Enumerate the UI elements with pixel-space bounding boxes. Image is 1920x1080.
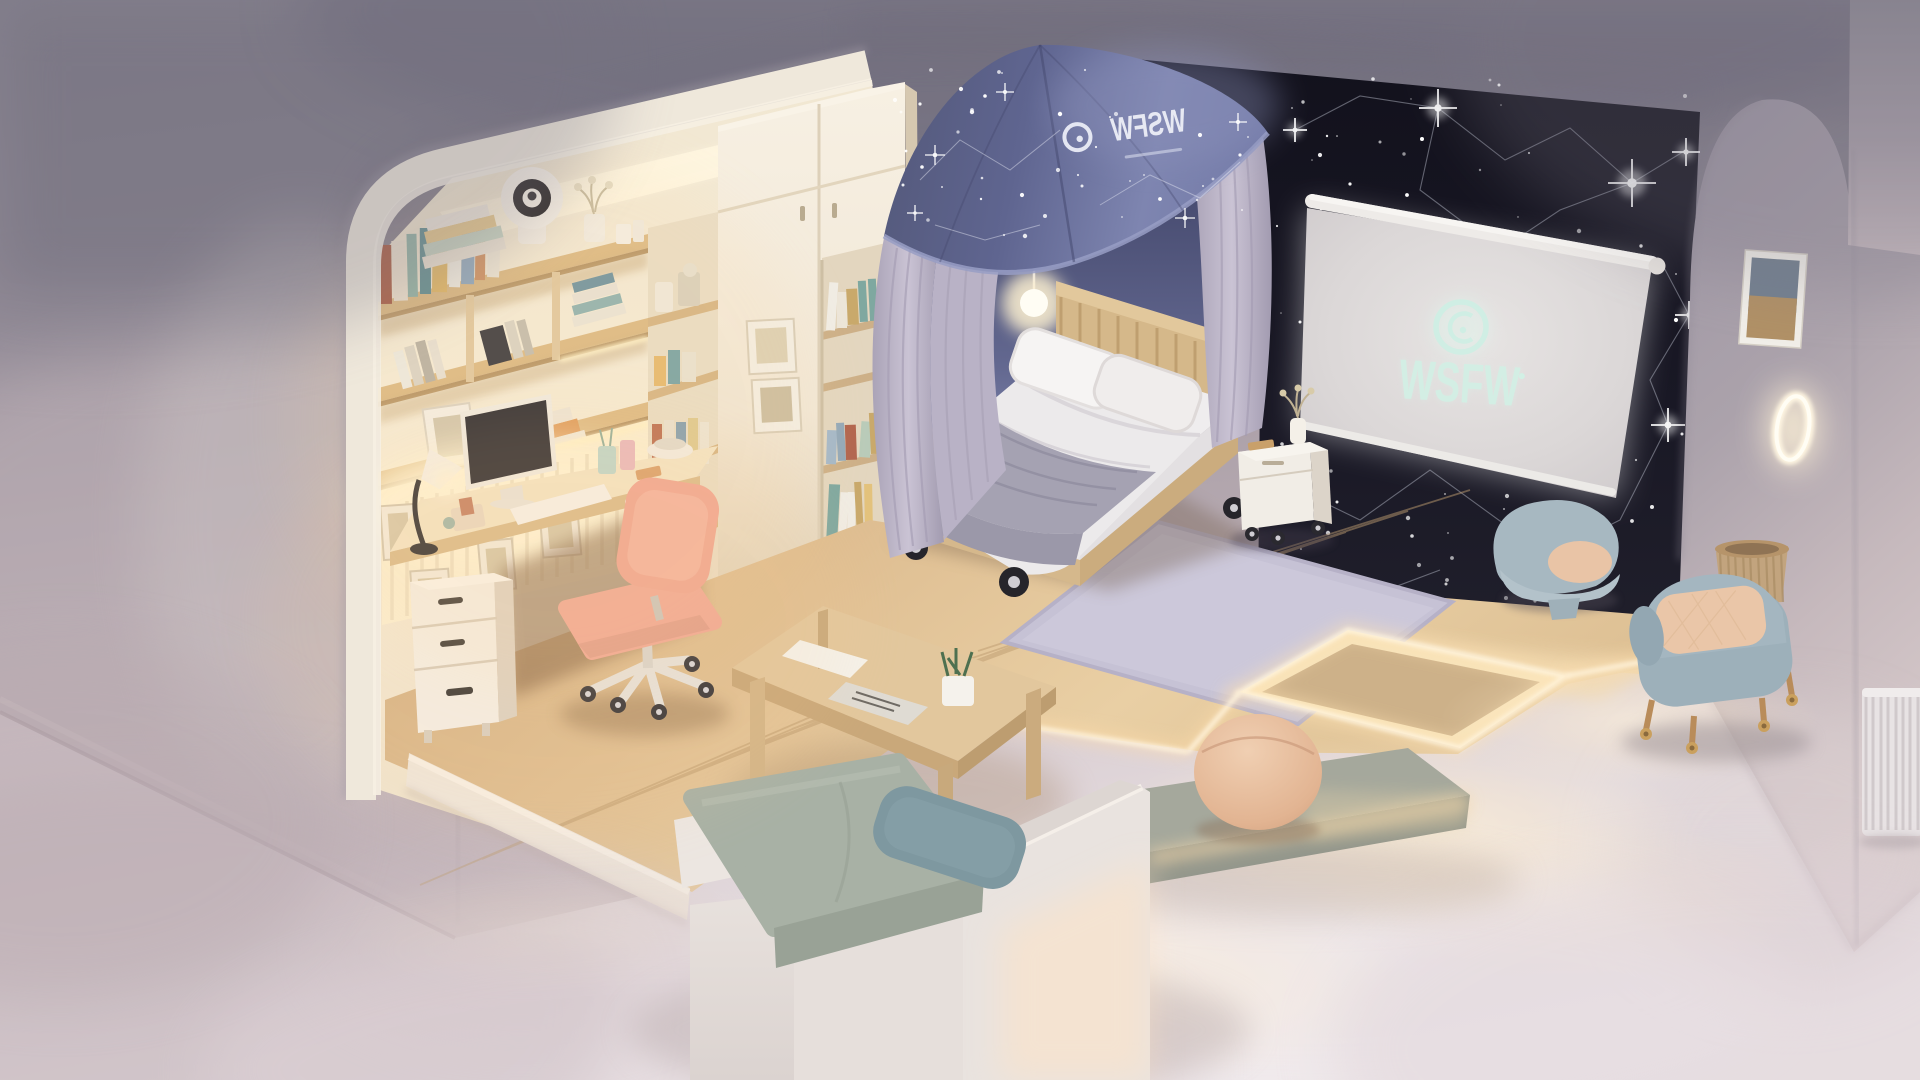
svg-text:WSFW: WSFW bbox=[1397, 349, 1522, 419]
